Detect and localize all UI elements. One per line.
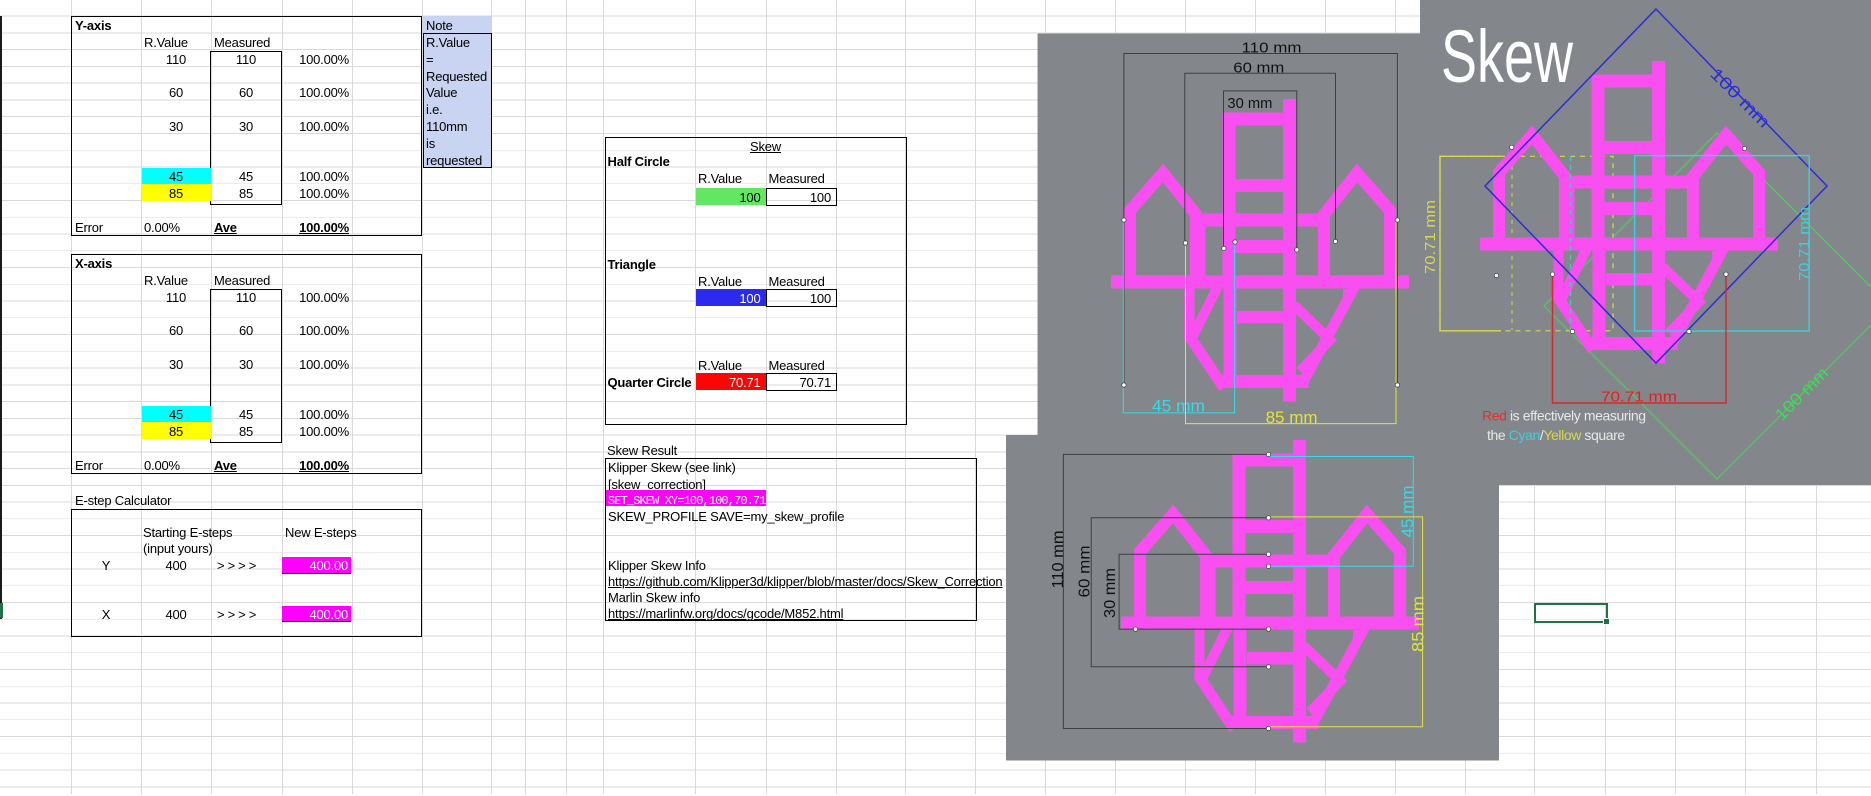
svg-text:Red is effectively measuring: Red is effectively measuring [1482, 408, 1646, 424]
svg-text:85 mm: 85 mm [1409, 596, 1428, 652]
svg-text:70.71 mm: 70.71 mm [1601, 389, 1677, 406]
svg-text:60 mm: 60 mm [1233, 59, 1284, 76]
svg-text:70.71 mm: 70.71 mm [1796, 207, 1813, 281]
svg-text:the Cyan/Yellow square: the Cyan/Yellow square [1487, 427, 1625, 443]
svg-text:60 mm: 60 mm [1077, 546, 1094, 598]
svg-text:30 mm: 30 mm [1227, 95, 1272, 112]
svg-text:Skew: Skew [1441, 15, 1573, 98]
svg-text:85 mm: 85 mm [1266, 409, 1318, 427]
svg-text:70.71 mm: 70.71 mm [1422, 200, 1439, 274]
svg-text:45 mm: 45 mm [1152, 398, 1205, 416]
svg-text:30 mm: 30 mm [1102, 568, 1119, 618]
svg-text:110 mm: 110 mm [1050, 531, 1067, 589]
svg-text:110 mm: 110 mm [1242, 40, 1302, 57]
svg-text:45 mm: 45 mm [1398, 486, 1417, 538]
